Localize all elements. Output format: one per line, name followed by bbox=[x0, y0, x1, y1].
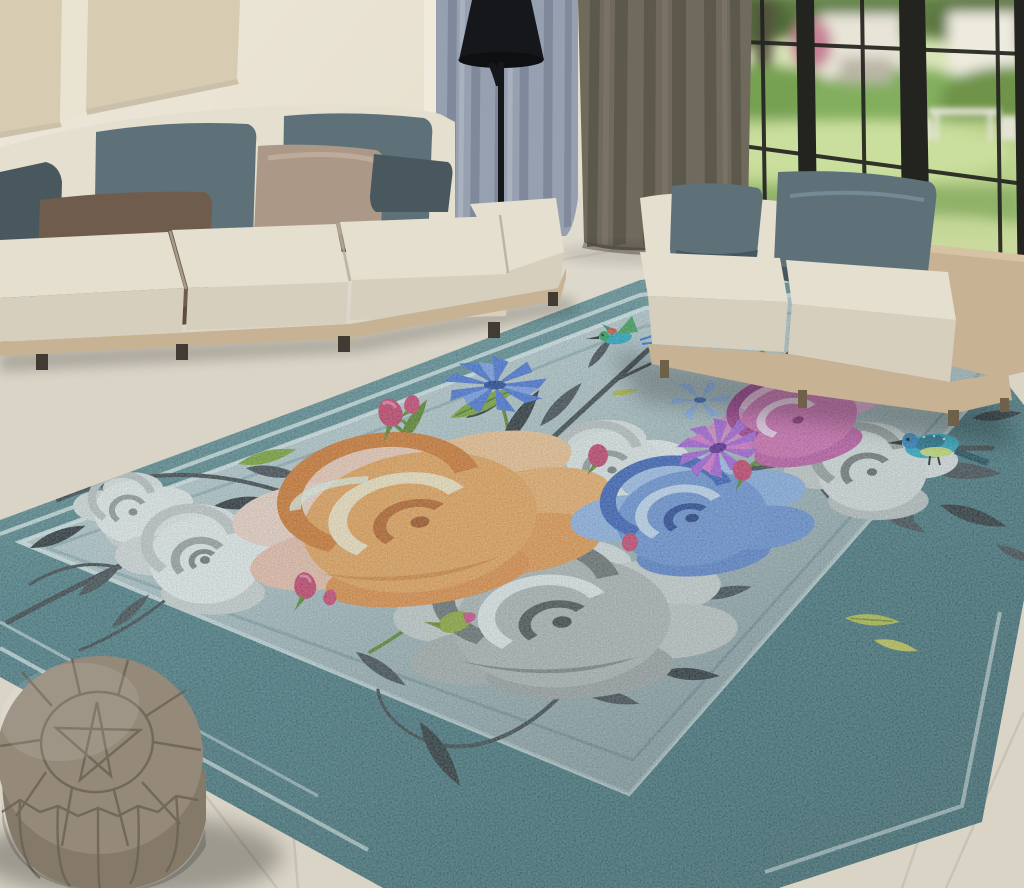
living-room-photo bbox=[0, 0, 1024, 888]
lamp-shade bbox=[459, 0, 544, 60]
seat-cushion-1-top bbox=[0, 232, 184, 298]
lamp-pole bbox=[498, 62, 504, 212]
seat-cushion-2-front bbox=[186, 282, 348, 330]
scene-canvas bbox=[0, 0, 1024, 888]
wall-panel-left bbox=[0, 0, 62, 132]
wall-panel-gap bbox=[60, 0, 88, 122]
sofa-right-seat-1-top bbox=[640, 252, 788, 302]
seat-cushion-2-top bbox=[172, 224, 348, 288]
pillow-slate-small bbox=[370, 154, 453, 212]
sofa-right-seat-1-front bbox=[648, 296, 788, 352]
